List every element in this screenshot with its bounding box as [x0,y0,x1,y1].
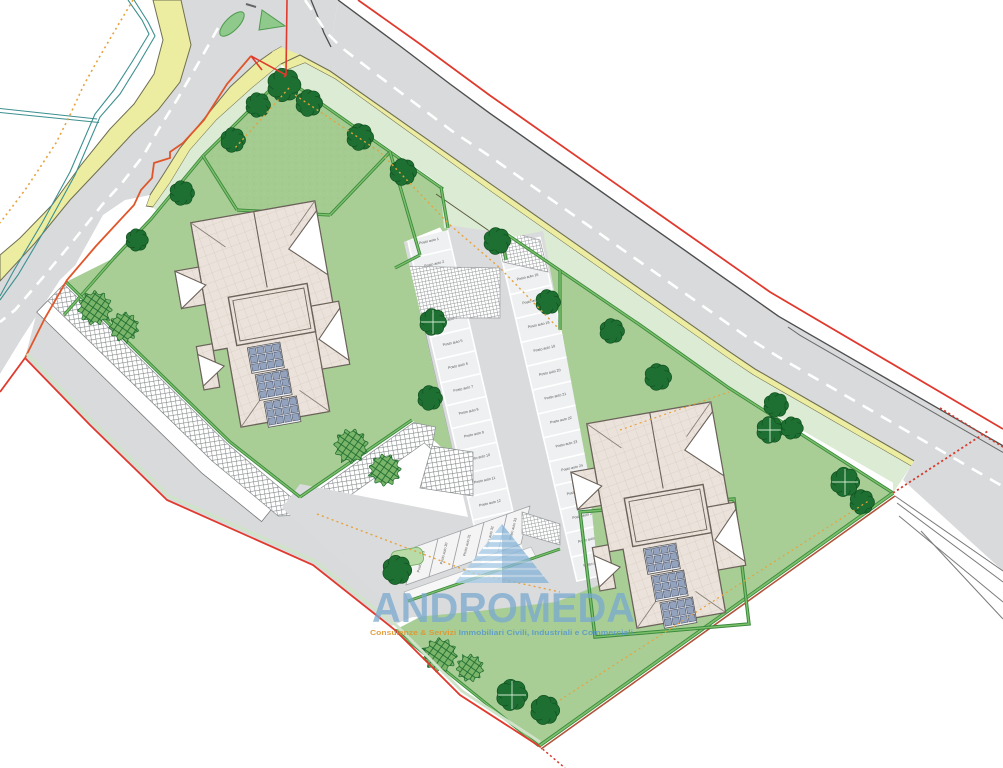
svg-text:ANDROMEDA: ANDROMEDA [372,584,635,631]
svg-text:Consulenze & Servizi Immobilia: Consulenze & Servizi Immobiliari Civili,… [370,628,633,637]
